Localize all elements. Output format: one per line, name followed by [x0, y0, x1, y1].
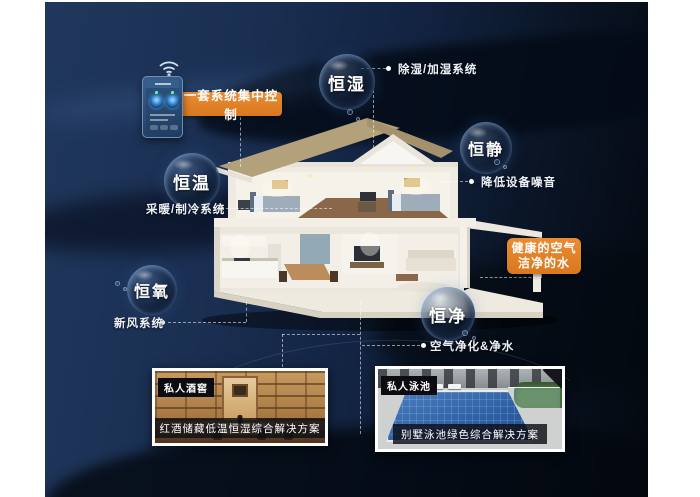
poster: 恒湿 恒静 恒温 恒氧 恒净 除湿/加湿系统 降低设备噪音 采暖/制冷系统 新风… [0, 0, 700, 497]
wifi-icon [157, 57, 181, 77]
connector-line [440, 181, 468, 182]
screen-text-row [150, 119, 168, 121]
dial-knob-icon [166, 95, 179, 108]
lounge-chair [448, 384, 461, 389]
connector-line [360, 302, 361, 434]
screen-button [170, 125, 178, 130]
connector-line [373, 90, 374, 148]
bubble-label: 恒温 [173, 169, 211, 194]
dial-knob-icon [150, 95, 163, 108]
central-control-text: 一套系统集中控制 [180, 85, 282, 123]
mini-bubble [123, 287, 127, 291]
bubble-label: 恒净 [429, 302, 467, 327]
connector-line [282, 334, 360, 335]
wine-cellar-photo: 私人酒窖 红酒储藏低温恒湿综合解决方案 [152, 368, 328, 446]
status-led [171, 91, 174, 94]
screen-button [150, 125, 158, 130]
connector-line [168, 322, 246, 323]
note-heating-cooling: 采暖/制冷系统 [146, 201, 225, 217]
note-fresh-air-system: 新风系统 [114, 315, 164, 331]
status-led [155, 91, 158, 94]
photo-caption: 别墅泳池绿色综合解决方案 [393, 424, 547, 444]
healthy-air-water-label: 健康的空气 洁净的水 [507, 238, 581, 274]
pool-photo: 私人泳池 别墅泳池绿色综合解决方案 [375, 366, 565, 452]
connector-line [246, 302, 247, 322]
photo-tag: 私人酒窖 [158, 378, 214, 397]
bubble-label: 恒湿 [328, 70, 366, 95]
glass-fence [508, 387, 560, 409]
bubble-label: 恒静 [468, 136, 504, 160]
controller-screen [146, 80, 179, 134]
connector-line [480, 277, 541, 278]
clean-water-text: 洁净的水 [518, 256, 570, 271]
mini-bubble [347, 109, 353, 115]
bullet-dot [469, 179, 474, 184]
note-humidity-system: 除湿/加湿系统 [398, 61, 477, 77]
photo-tag: 私人泳池 [381, 376, 437, 395]
mini-bubble [494, 159, 500, 165]
mini-bubble [115, 281, 120, 286]
photo-caption: 红酒储藏低温恒湿综合解决方案 [155, 418, 325, 438]
bubble-label: 恒氧 [134, 278, 170, 302]
bubble-constant-oxygen: 恒氧 [127, 265, 177, 315]
bullet-dot [386, 66, 391, 71]
connector-line [282, 334, 283, 367]
screen-button [160, 125, 168, 130]
mini-bubble [503, 165, 507, 169]
mini-bubble [356, 117, 360, 121]
mini-bubble [462, 330, 468, 336]
bullet-dot [421, 343, 426, 348]
smart-home-controller [142, 76, 183, 138]
note-noise-reduction: 降低设备噪音 [481, 174, 556, 190]
central-control-label: 一套系统集中控制 [180, 92, 282, 116]
connector-line [240, 117, 241, 167]
bubble-constant-humidity: 恒湿 [319, 54, 375, 110]
connector-line [362, 345, 420, 346]
connector-line [226, 208, 332, 209]
controller-header [146, 80, 179, 88]
screen-text-row [150, 114, 175, 116]
note-air-water-purify: 空气净化&净水 [430, 338, 514, 354]
healthy-air-text: 健康的空气 [511, 241, 576, 256]
